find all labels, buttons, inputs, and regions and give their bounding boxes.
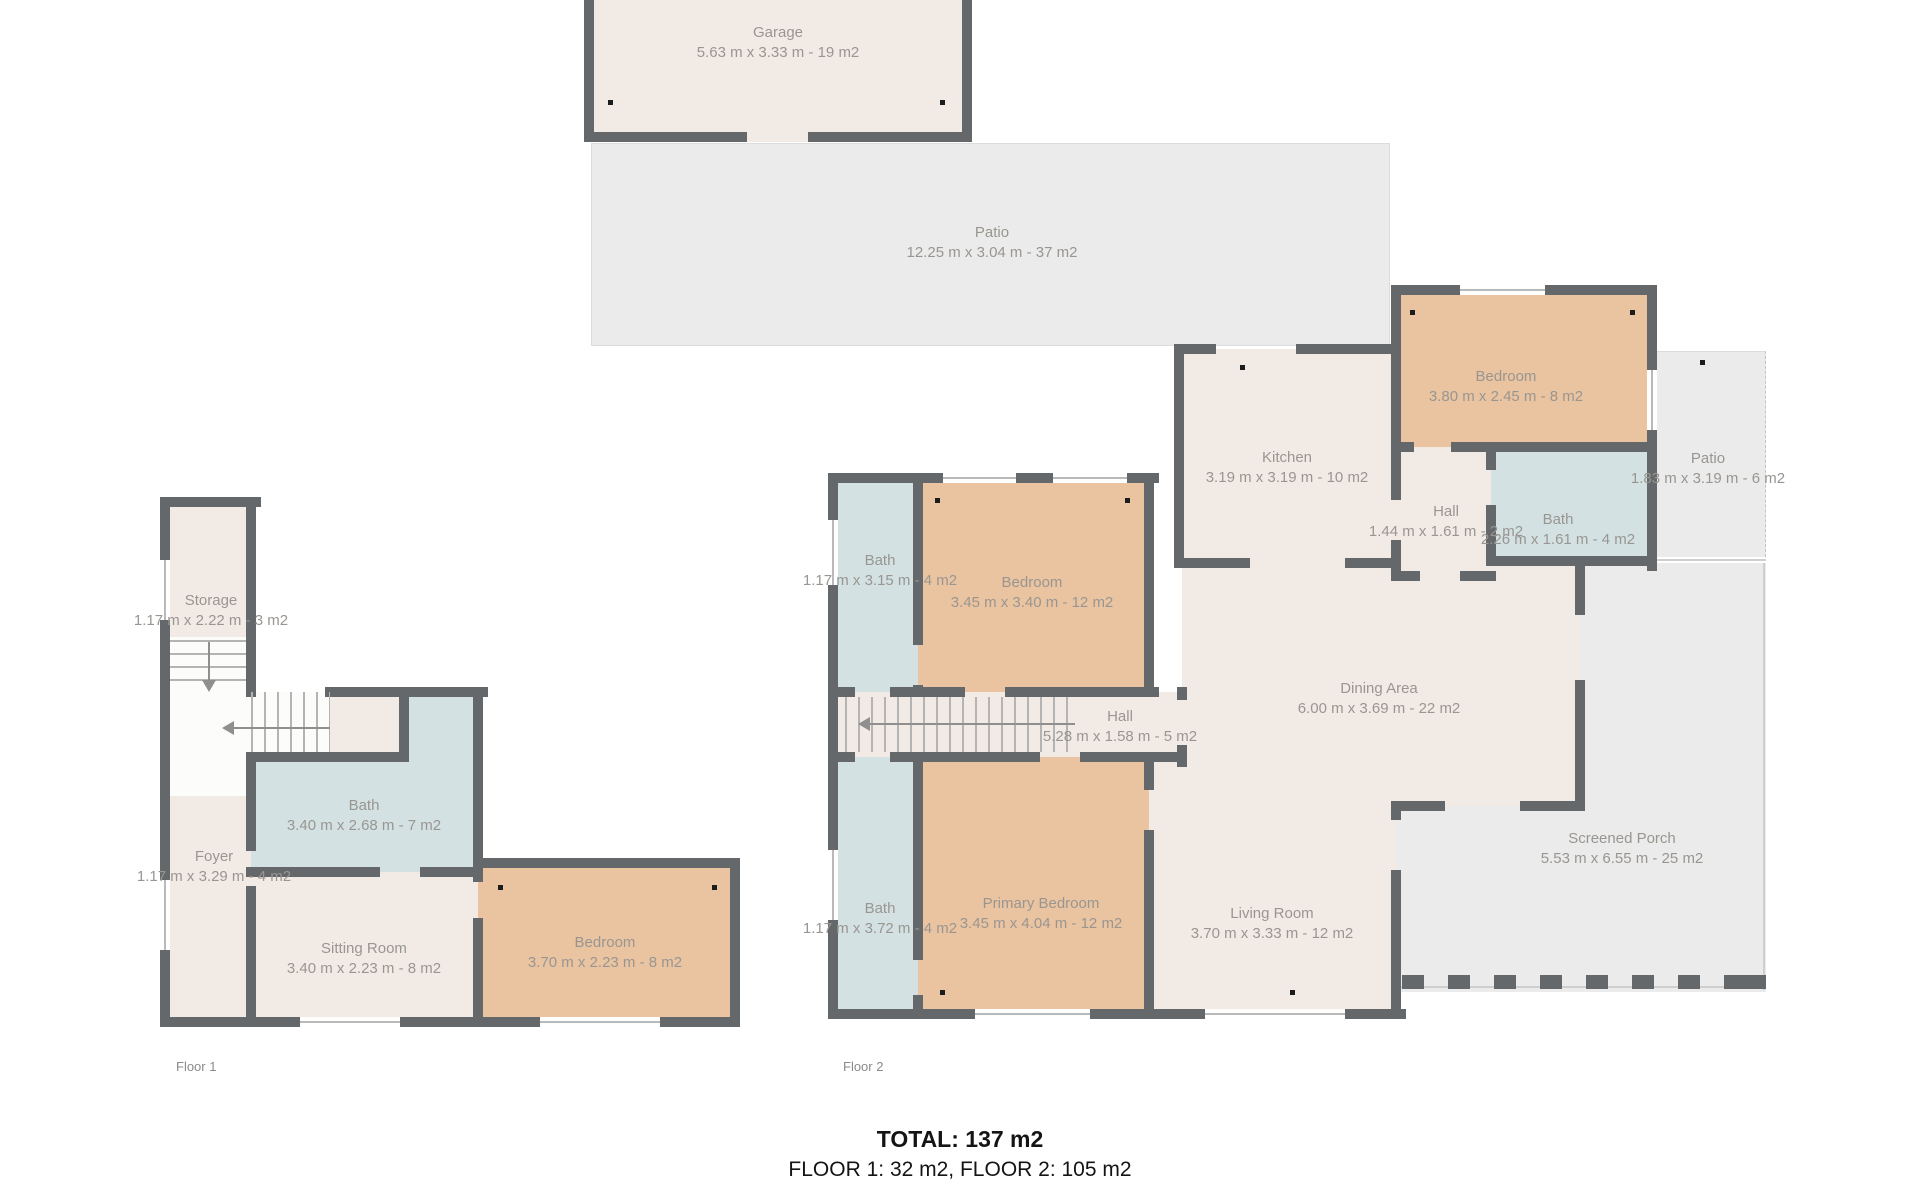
room-dims: 6.00 m x 3.69 m - 22 m2 [1298,699,1461,719]
porch-post [1724,975,1746,989]
wall-segment [1296,344,1401,354]
floor-areas-text: FLOOR 1: 32 m2, FLOOR 2: 105 m2 [0,1158,1920,1182]
room-foyer [165,796,251,1022]
room-stair-landing [330,692,404,757]
corner-marker [940,990,945,995]
room-name: Bath [287,796,441,816]
room-dims: 5.63 m x 3.33 m - 19 m2 [697,43,860,63]
wall-segment [1391,801,1445,811]
room-label-living-room: Living Room 3.70 m x 3.33 m - 12 m2 [1191,904,1354,944]
room-name: Bedroom [951,573,1114,593]
porch-edge-line [1652,559,1766,561]
room-label-hall-long: Hall 5.28 m x 1.58 m - 5 m2 [1043,707,1197,747]
room-dims: 3.45 m x 4.04 m - 12 m2 [960,914,1123,934]
corner-marker [608,100,613,105]
room-label-bath-upper-left: Bath 1.17 m x 3.15 m - 4 m2 [803,551,957,591]
room-name: Bedroom [528,933,682,953]
wall-segment [808,132,972,142]
room-label-storage: Storage 1.17 m x 2.22 m - 3 m2 [134,591,288,631]
corner-marker [935,498,940,503]
wall-segment [828,687,855,697]
window-marker [1053,473,1127,483]
room-name: Kitchen [1206,448,1369,468]
wall-segment [1345,558,1401,568]
stairs-direction-arrow-icon [208,642,210,680]
wall-segment [246,752,409,762]
wall-segment [584,132,747,142]
room-label-dining-area: Dining Area 6.00 m x 3.69 m - 22 m2 [1298,679,1461,719]
area-summary: TOTAL: 137 m2 FLOOR 1: 32 m2, FLOOR 2: 1… [0,1126,1920,1182]
wall-segment [1391,285,1401,500]
room-name: Garage [697,23,860,43]
room-name: Bath [803,551,957,571]
room-dims: 1.17 m x 3.72 m - 4 m2 [803,919,957,939]
room-dims: 5.28 m x 1.58 m - 5 m2 [1043,727,1197,747]
corner-marker [1125,498,1130,503]
room-label-garage: Garage 5.63 m x 3.33 m - 19 m2 [697,23,860,63]
room-name: Hall [1043,707,1197,727]
room-dims: 3.45 m x 3.40 m - 12 m2 [951,593,1114,613]
wall-segment [246,886,256,1027]
window-marker [160,880,170,950]
total-area-text: TOTAL: 137 m2 [0,1126,1920,1153]
room-name: Primary Bedroom [960,894,1123,914]
wall-segment [1005,687,1159,697]
corner-marker [1700,360,1705,365]
room-bath-lower-left [833,757,918,1014]
stairs-direction-arrow-icon [232,727,330,729]
room-dims: 1.83 m x 3.19 m - 6 m2 [1631,469,1785,489]
wall-segment [1391,442,1414,452]
window-marker [943,473,1016,483]
room-name: Foyer [137,847,291,867]
room-label-bedroom-upper-left: Bedroom 3.45 m x 3.40 m - 12 m2 [951,573,1114,613]
porch-post [1586,975,1608,989]
wall-segment [1174,558,1250,568]
wall-segment [1177,745,1187,767]
wall-segment [473,858,740,868]
room-label-screened-porch: Screened Porch 5.53 m x 6.55 m - 25 m2 [1541,829,1704,869]
corner-marker [1630,310,1635,315]
wall-segment [1391,870,1401,1019]
room-name: Bedroom [1429,367,1583,387]
staircase-f1-lower [251,692,330,752]
window-marker [1647,370,1657,430]
wall-segment [730,858,740,1027]
wall-segment [473,687,483,882]
room-dims: 1.17 m x 3.15 m - 4 m2 [803,571,957,591]
stairs-arrowhead-icon [202,680,216,692]
porch-post [1678,975,1700,989]
room-dims: 3.40 m x 2.23 m - 8 m2 [287,959,441,979]
corner-marker [940,100,945,105]
room-label-patio-right: Patio 1.83 m x 3.19 m - 6 m2 [1631,449,1785,489]
room-label-foyer: Foyer 1.17 m x 3.29 m - 4 m2 [137,847,291,887]
window-marker [300,1017,400,1027]
porch-post [1402,975,1424,989]
stairs-arrowhead-icon [858,717,870,731]
room-dims: 12.25 m x 3.04 m - 37 m2 [907,243,1078,263]
room-bath-f1-upper [404,692,478,757]
wall-segment [1575,558,1585,615]
floor1-tag: Floor 1 [176,1059,216,1074]
corner-marker [712,885,717,890]
room-dims: 1.17 m x 3.29 m - 4 m2 [137,867,291,887]
room-dims: 3.70 m x 3.33 m - 12 m2 [1191,924,1354,944]
window-marker [540,1017,660,1027]
room-name: Screened Porch [1541,829,1704,849]
room-name: Bath [1481,510,1635,530]
room-name: Storage [134,591,288,611]
window-marker [1460,285,1545,295]
room-dims: 2.26 m x 1.61 m - 4 m2 [1481,530,1635,550]
wall-segment [1144,830,1154,1019]
room-label-bath-f1: Bath 3.40 m x 2.68 m - 7 m2 [287,796,441,836]
wall-segment [1144,473,1154,697]
wall-segment [1144,752,1154,790]
wall-segment [473,918,483,1027]
room-name: Living Room [1191,904,1354,924]
wall-segment [1460,571,1496,581]
wall-segment [1575,680,1585,811]
window-marker [1205,1009,1345,1019]
wall-segment [1391,571,1420,581]
wall-segment [584,0,594,142]
wall-segment [962,0,972,142]
room-dims: 3.80 m x 2.45 m - 8 m2 [1429,387,1583,407]
room-name: Patio [907,223,1078,243]
room-name: Sitting Room [287,939,441,959]
wall-segment [1174,344,1184,568]
room-label-kitchen: Kitchen 3.19 m x 3.19 m - 10 m2 [1206,448,1369,488]
window-marker [975,1009,1090,1019]
room-screened-porch-right [1580,563,1766,992]
corner-marker [1240,365,1245,370]
room-name: Dining Area [1298,679,1461,699]
room-dims: 1.17 m x 2.22 m - 3 m2 [134,611,288,631]
floor2-tag: Floor 2 [843,1059,883,1074]
room-name: Patio [1631,449,1785,469]
floor-plan-canvas: Garage 5.63 m x 3.33 m - 19 m2 Patio 12.… [0,0,1920,1200]
corner-marker [498,885,503,890]
porch-post [1448,975,1470,989]
wall-segment [890,687,965,697]
wall-segment [1177,687,1187,700]
room-name: Bath [803,899,957,919]
stairs-arrowhead-icon [222,721,234,735]
porch-post [1744,975,1766,989]
wall-segment [1080,752,1187,762]
wall-segment [246,752,256,851]
room-label-bath-lower-left: Bath 1.17 m x 3.72 m - 4 m2 [803,899,957,939]
room-primary-bedroom [918,757,1149,1014]
room-label-patio-large: Patio 12.25 m x 3.04 m - 37 m2 [907,223,1078,263]
porch-post [1494,975,1516,989]
porch-edge-line [1763,563,1765,990]
room-label-bedroom-top-right: Bedroom 3.80 m x 2.45 m - 8 m2 [1429,367,1583,407]
room-dims: 3.40 m x 2.68 m - 7 m2 [287,816,441,836]
room-dims: 3.70 m x 2.23 m - 8 m2 [528,953,682,973]
room-label-sitting-room: Sitting Room 3.40 m x 2.23 m - 8 m2 [287,939,441,979]
corner-marker [1290,990,1295,995]
wall-segment [1486,556,1657,566]
wall-segment [399,687,409,762]
porch-post [1632,975,1654,989]
wall-segment [1451,442,1657,452]
room-living-room [1149,757,1396,1014]
room-dims: 3.19 m x 3.19 m - 10 m2 [1206,468,1369,488]
room-label-bath-top-right: Bath 2.26 m x 1.61 m - 4 m2 [1481,510,1635,550]
room-label-primary-bedroom: Primary Bedroom 3.45 m x 4.04 m - 12 m2 [960,894,1123,934]
porch-post [1540,975,1562,989]
wall-segment [828,752,855,762]
room-garage [584,0,972,142]
room-dims: 5.53 m x 6.55 m - 25 m2 [1541,849,1704,869]
wall-segment [1486,442,1496,470]
room-label-bedroom-f1: Bedroom 3.70 m x 2.23 m - 8 m2 [528,933,682,973]
corner-marker [1410,310,1415,315]
